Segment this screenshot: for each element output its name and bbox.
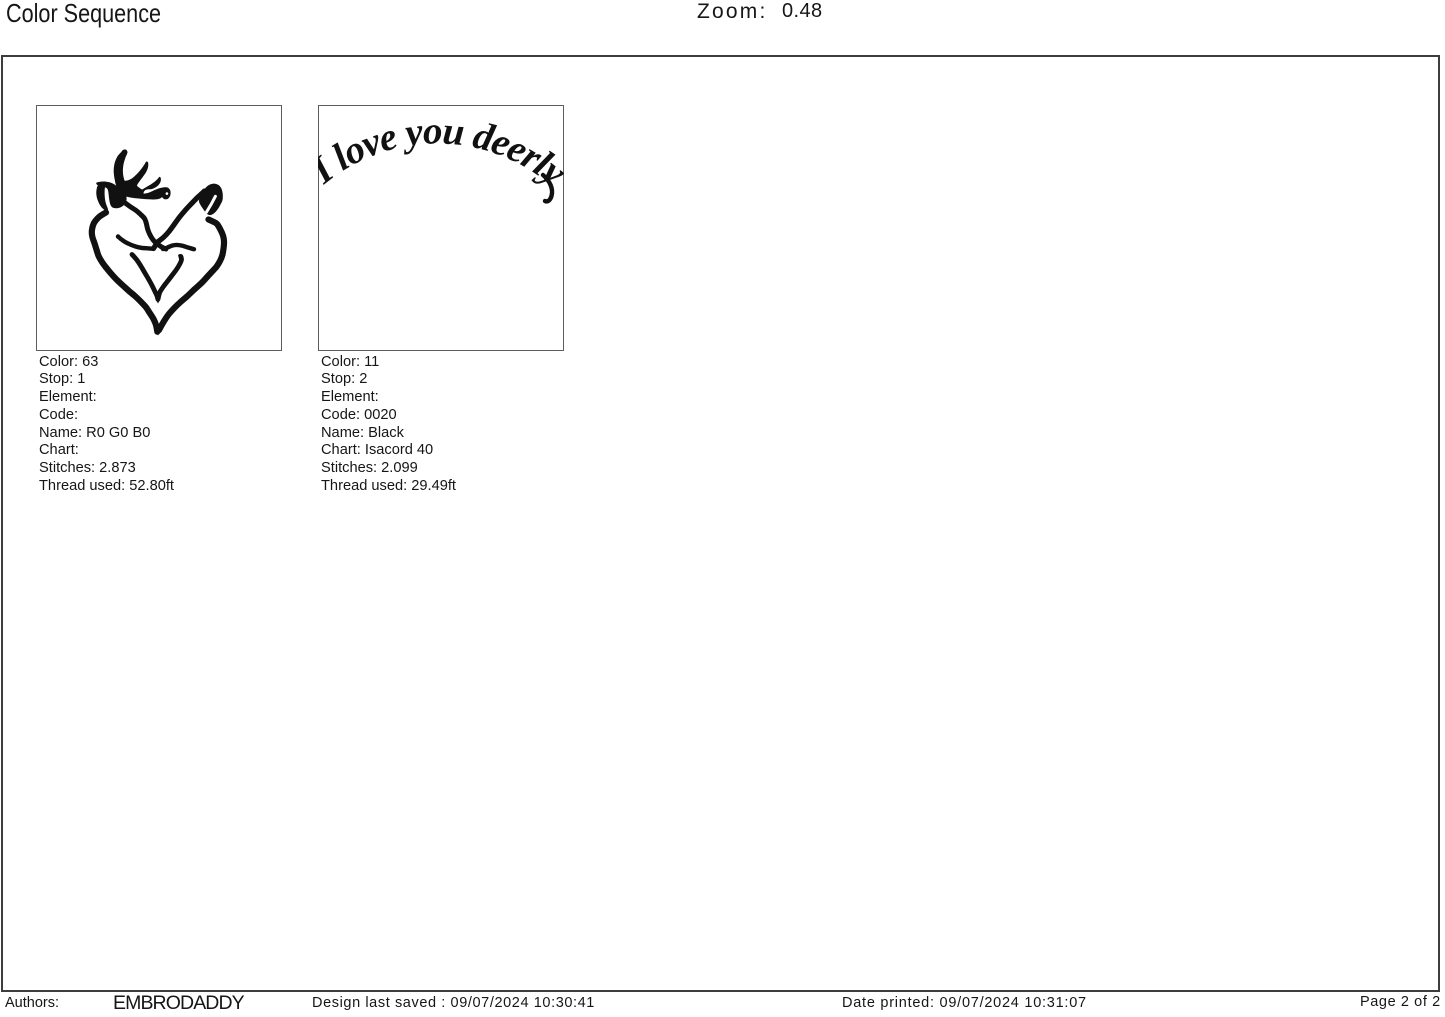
svg-text:I love you deerly: I love you deerly <box>318 109 564 194</box>
